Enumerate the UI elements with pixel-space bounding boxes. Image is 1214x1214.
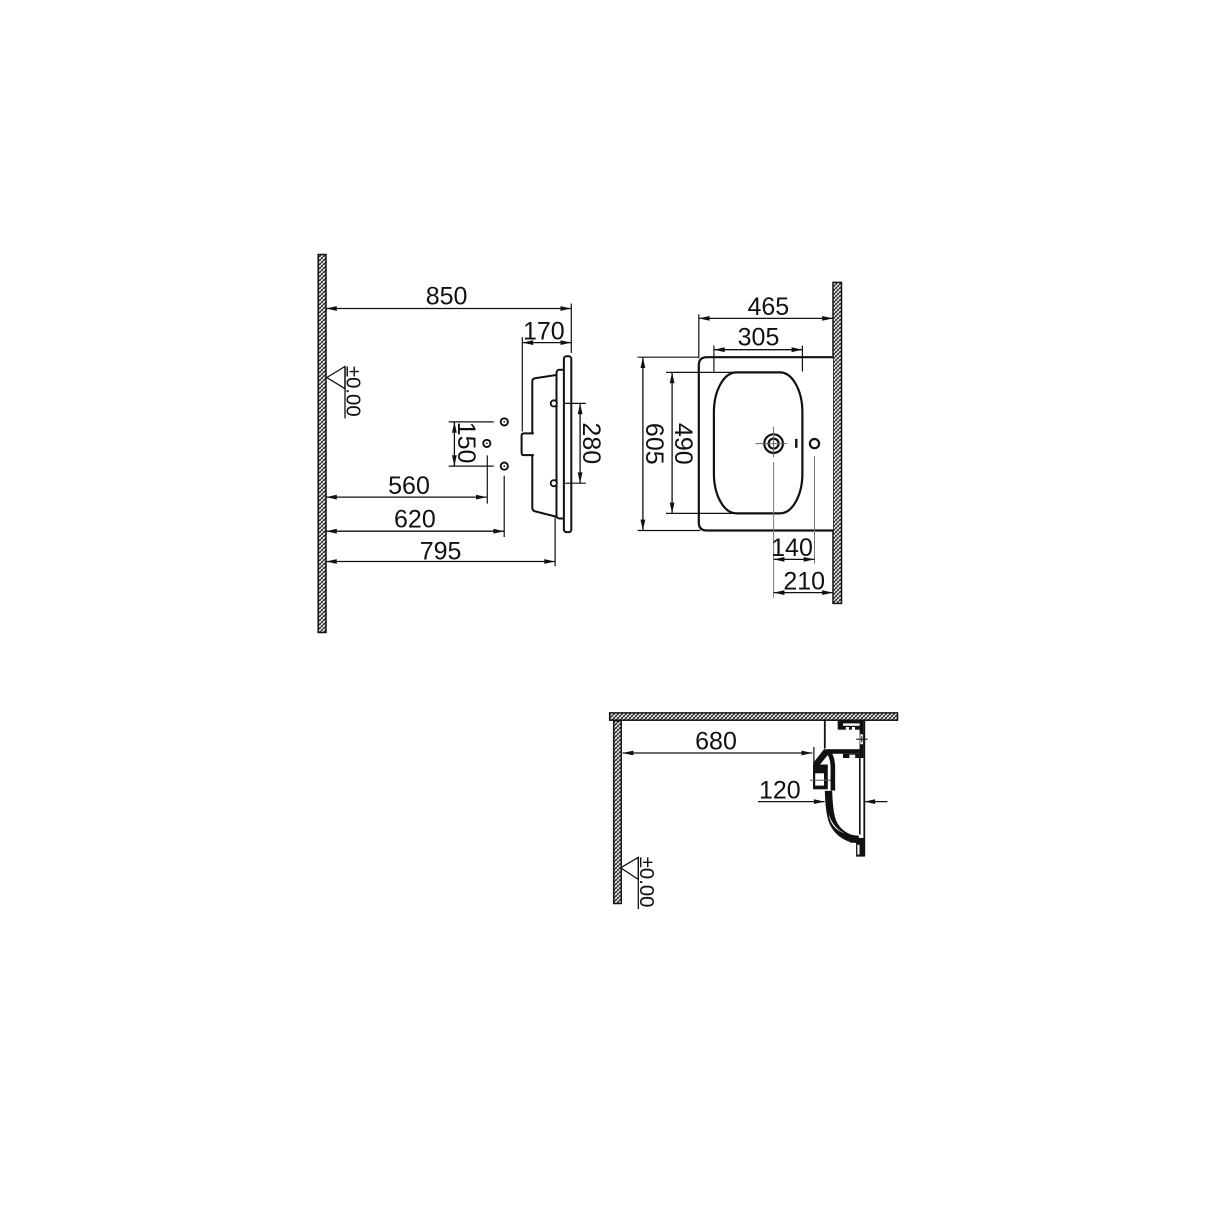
svg-text:305: 305 bbox=[738, 323, 780, 351]
svg-text:605: 605 bbox=[640, 423, 668, 465]
svg-text:680: 680 bbox=[695, 727, 737, 755]
svg-text:170: 170 bbox=[523, 317, 565, 345]
svg-text:620: 620 bbox=[394, 506, 436, 534]
svg-text:850: 850 bbox=[426, 283, 468, 311]
svg-text:490: 490 bbox=[669, 423, 697, 465]
svg-text:±0.00: ±0.00 bbox=[635, 857, 657, 908]
svg-text:±0.00: ±0.00 bbox=[341, 366, 363, 417]
svg-text:795: 795 bbox=[420, 538, 462, 566]
svg-text:140: 140 bbox=[771, 534, 813, 562]
svg-text:280: 280 bbox=[577, 422, 605, 464]
svg-text:210: 210 bbox=[783, 568, 825, 596]
svg-text:465: 465 bbox=[747, 293, 789, 321]
svg-text:150: 150 bbox=[452, 422, 480, 464]
svg-text:120: 120 bbox=[759, 777, 801, 805]
svg-text:560: 560 bbox=[388, 472, 430, 500]
